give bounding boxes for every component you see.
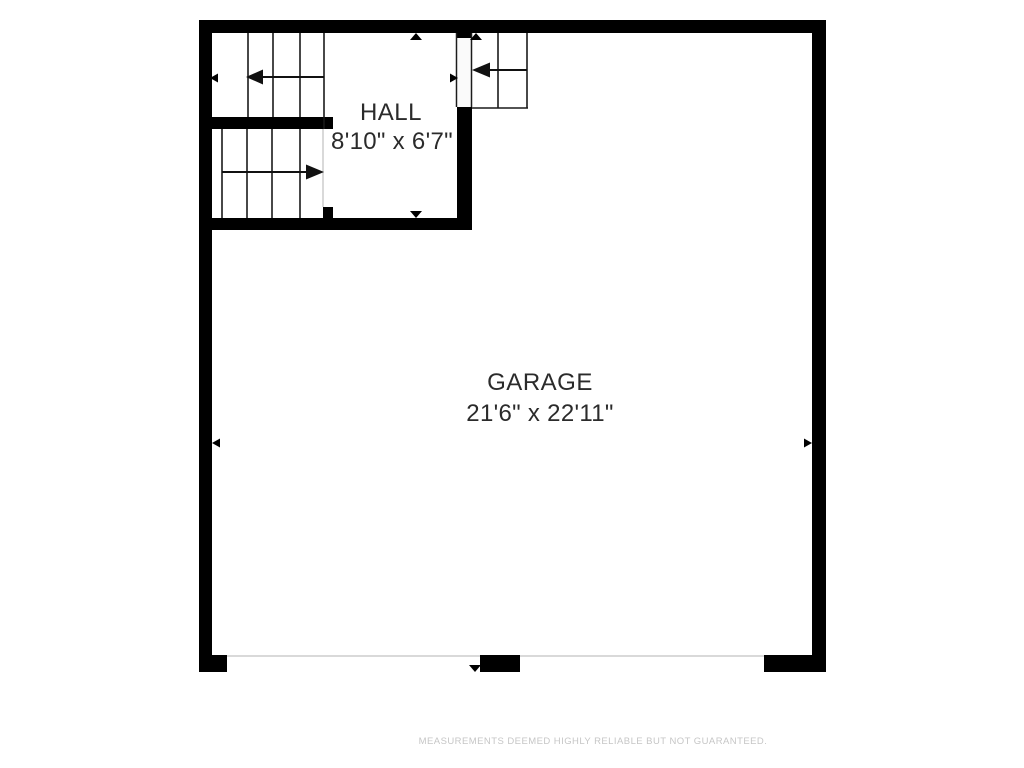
dimension-marker-garage-bottom-icon xyxy=(469,665,481,672)
arrow-left-icon xyxy=(472,63,490,78)
hall-label: HALL xyxy=(360,99,422,126)
staircase-entry-steps xyxy=(472,33,528,108)
hall-door-opening xyxy=(457,33,472,107)
exterior-wall-right xyxy=(812,20,826,672)
stair-direction-arrow-lower xyxy=(222,165,324,180)
disclaimer-text: MEASUREMENTS DEEMED HIGHLY RELIABLE BUT … xyxy=(419,736,768,747)
stair-direction-arrow-upper xyxy=(246,70,324,85)
room-labels: HALL 8'10" x 6'7" GARAGE 21'6" x 22'11" xyxy=(331,99,614,427)
hall-wall-bottom xyxy=(199,218,472,230)
floorplan-page: HALL 8'10" x 6'7" GARAGE 21'6" x 22'11" … xyxy=(0,0,1024,768)
staircase-lower-run xyxy=(222,129,324,218)
bottom-wall-left-corner xyxy=(199,655,227,672)
hall-door-opening-fill xyxy=(458,38,471,107)
dimension-marker-garage-left-icon xyxy=(212,439,220,448)
arrow-right-icon xyxy=(306,165,324,180)
hall-door-lintel-stub xyxy=(457,33,472,38)
dimension-marker-hall-bottom-icon xyxy=(410,211,422,218)
stair-landing-wall xyxy=(199,117,333,129)
hall-wall-right xyxy=(457,107,472,230)
hall-dimensions: 8'10" x 6'7" xyxy=(331,128,453,155)
garage-door-right-line xyxy=(520,655,764,657)
dimension-marker-hall-top-icon xyxy=(410,33,422,40)
garage-door-center-post xyxy=(480,655,520,672)
garage-dimensions: 21'6" x 22'11" xyxy=(466,400,613,427)
garage-label: GARAGE xyxy=(487,369,593,396)
staircase-upper-run xyxy=(246,33,324,129)
floorplan-canvas: HALL 8'10" x 6'7" GARAGE 21'6" x 22'11" … xyxy=(0,0,1024,768)
dimension-marker-garage-right-icon xyxy=(804,439,812,448)
bottom-wall-right-corner xyxy=(764,655,826,672)
garage-door-left-line xyxy=(227,655,480,657)
exterior-wall-top xyxy=(199,20,826,33)
stair-direction-arrow-entry xyxy=(472,63,527,78)
stair-stub-wall xyxy=(323,207,333,218)
